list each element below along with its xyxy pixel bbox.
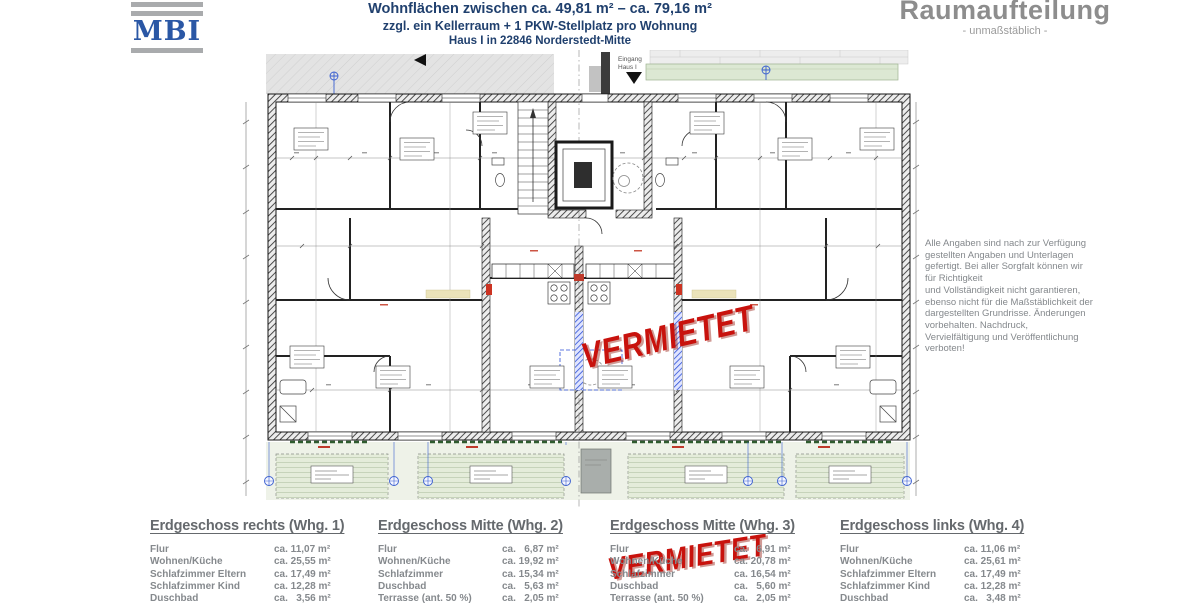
room-area: ca. 2,05 m²	[502, 593, 559, 605]
apartment-column-whg2: Erdgeschoss Mitte (Whg. 2) Flurca. 6,87 …	[378, 518, 600, 605]
apartment-column-whg3: Erdgeschoss Mitte (Whg. 3) Flurca. 6,91 …	[610, 518, 832, 605]
expose-page: MBI Wohnflächen zwischen ca. 49,81 m² – …	[0, 0, 1200, 600]
page-title: Raumaufteilung	[898, 0, 1112, 25]
room-label: Schlafzimmer Eltern	[840, 569, 964, 581]
utility-box	[581, 449, 611, 493]
room-label: Flur	[610, 544, 734, 556]
room-area: ca. 15,34 m²	[502, 569, 559, 581]
apartment-column-whg4: Erdgeschoss links (Whg. 4) Flurca. 11,06…	[840, 518, 1062, 605]
room-label: Schlafzimmer Kind	[150, 581, 274, 593]
disclaimer-text: Alle Angaben sind nach zur Verfügung ges…	[925, 238, 1103, 355]
area-row: Terrasse (ant. 50 %)ca. 2,05 m²	[610, 593, 832, 605]
room-area: ca. 6,91 m²	[734, 544, 791, 556]
room-area: ca. 6,87 m²	[502, 544, 559, 556]
area-row: Schlafzimmer Kindca. 12,28 m²	[150, 581, 372, 593]
room-area: ca. 3,48 m²	[964, 593, 1021, 605]
room-label: Wohnen/Küche	[150, 556, 274, 568]
area-row: Wohnen/Kücheca. 25,61 m²	[840, 556, 1062, 568]
room-label: Duschbad	[150, 593, 274, 605]
room-label: Flur	[378, 544, 502, 556]
area-row: Schlafzimmerca. 16,54 m²	[610, 569, 832, 581]
area-row: Duschbadca. 5,63 m²	[378, 581, 600, 593]
area-row: Wohnen/Kücheca. 19,92 m²	[378, 556, 600, 568]
room-area: ca. 20,78 m²	[734, 556, 791, 568]
room-area: ca. 11,06 m²	[964, 544, 1020, 556]
page-subtitle: - unmaßstäblich -	[898, 25, 1112, 38]
header-line-1: Wohnflächen zwischen ca. 49,81 m² – ca. …	[290, 1, 790, 18]
apartment-title: Erdgeschoss Mitte (Whg. 2)	[378, 518, 600, 534]
terraces	[265, 442, 912, 500]
room-area: ca. 25,55 m²	[274, 556, 331, 568]
logo-text: MBI	[131, 17, 203, 46]
room-label: Schlafzimmer Eltern	[150, 569, 274, 581]
logo-bar	[131, 48, 203, 53]
stairwell	[518, 102, 548, 214]
title-block: Raumaufteilung - unmaßstäblich -	[898, 0, 1112, 38]
room-label: Duschbad	[840, 593, 964, 605]
room-label: Terrasse (ant. 50 %)	[378, 593, 502, 605]
room-area: ca. 17,49 m²	[274, 569, 331, 581]
room-area: ca. 2,05 m²	[734, 593, 791, 605]
area-row: Schlafzimmer Kindca. 12,28 m²	[840, 581, 1062, 593]
room-label: Schlafzimmer	[610, 569, 734, 581]
room-label: Duschbad	[610, 581, 734, 593]
room-label: Wohnen/Küche	[610, 556, 734, 568]
apartment-title: Erdgeschoss Mitte (Whg. 3)	[610, 518, 832, 534]
logo-bar	[131, 2, 203, 7]
area-row: Wohnen/Kücheca. 25,55 m²	[150, 556, 372, 568]
entrance-label-2: Haus I	[618, 64, 637, 71]
floor-plan: Eingang Haus I	[230, 50, 932, 508]
header-line-2: zzgl. ein Kellerraum + 1 PKW-Stellplatz …	[290, 18, 790, 34]
elevator-shaft	[556, 142, 612, 208]
room-label: Wohnen/Küche	[840, 556, 964, 568]
entrance-marker: Eingang Haus I	[618, 56, 642, 84]
area-row: Flurca. 11,07 m²	[150, 544, 372, 556]
area-row: Schlafzimmer Elternca. 17,49 m²	[150, 569, 372, 581]
apartment-column-whg1: Erdgeschoss rechts (Whg. 1) Flurca. 11,0…	[150, 518, 372, 605]
room-area: ca. 5,63 m²	[502, 581, 559, 593]
area-row: Duschbadca. 5,60 m²	[610, 581, 832, 593]
room-area: ca. 12,28 m²	[274, 581, 331, 593]
site-surroundings	[266, 50, 908, 94]
room-label: Wohnen/Küche	[378, 556, 502, 568]
area-row: Wohnen/Kücheca. 20,78 m²	[610, 556, 832, 568]
area-row: Flurca. 6,87 m²	[378, 544, 600, 556]
room-area: ca. 25,61 m²	[964, 556, 1021, 568]
room-area: ca. 3,56 m²	[274, 593, 331, 605]
area-row: Duschbadca. 3,56 m²	[150, 593, 372, 605]
room-label: Duschbad	[378, 581, 502, 593]
entrance-label-1: Eingang	[618, 56, 642, 63]
area-row: Schlafzimmer Elternca. 17,49 m²	[840, 569, 1062, 581]
room-label: Flur	[840, 544, 964, 556]
apartment-title: Erdgeschoss links (Whg. 4)	[840, 518, 1062, 534]
apartment-title: Erdgeschoss rechts (Whg. 1)	[150, 518, 372, 534]
room-label: Flur	[150, 544, 274, 556]
room-area: ca. 11,07 m²	[274, 544, 330, 556]
room-label: Schlafzimmer	[378, 569, 502, 581]
room-label: Schlafzimmer Kind	[840, 581, 964, 593]
room-area: ca. 17,49 m²	[964, 569, 1021, 581]
room-area: ca. 12,28 m²	[964, 581, 1021, 593]
area-row: Terrasse (ant. 50 %)ca. 2,05 m²	[378, 593, 600, 605]
room-area: ca. 16,54 m²	[734, 569, 791, 581]
room-area: ca. 19,92 m²	[502, 556, 559, 568]
area-row: Flurca. 11,06 m²	[840, 544, 1062, 556]
room-area: ca. 5,60 m²	[734, 581, 791, 593]
area-row: Schlafzimmerca. 15,34 m²	[378, 569, 600, 581]
mbi-logo: MBI	[131, 2, 203, 53]
header-line-3: Haus I in 22846 Norderstedt-Mitte	[290, 34, 790, 49]
area-row: Flurca. 6,91 m²	[610, 544, 832, 556]
room-label: Terrasse (ant. 50 %)	[610, 593, 734, 605]
area-row: Duschbadca. 3,48 m²	[840, 593, 1062, 605]
page-header: Wohnflächen zwischen ca. 49,81 m² – ca. …	[290, 1, 790, 49]
